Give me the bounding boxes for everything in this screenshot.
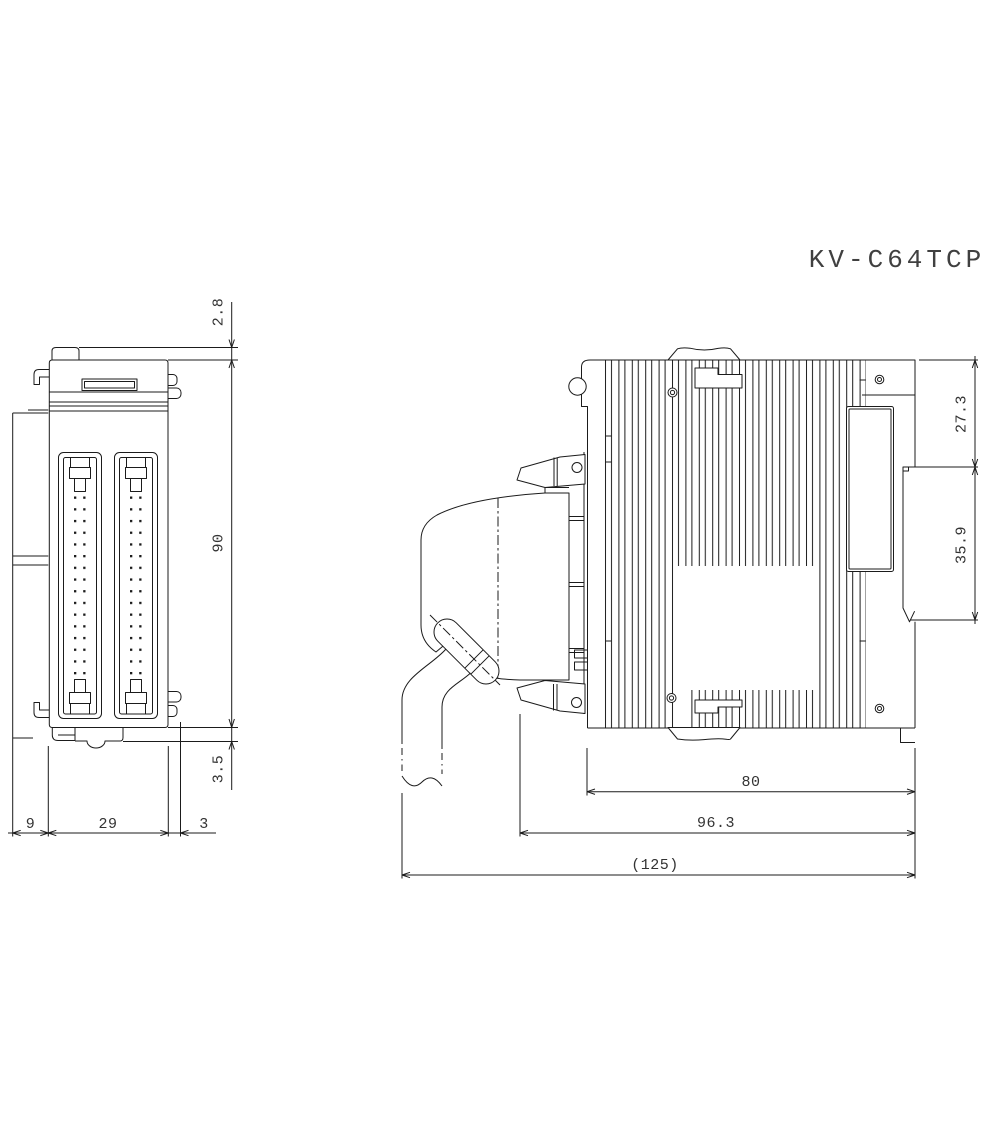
dim-side-depth-with-connector: 96.3 (697, 815, 735, 832)
adjacent-module-outline (13, 410, 49, 738)
side-view (402, 348, 915, 786)
dim-side-upper-section: 27.3 (954, 395, 971, 433)
pin-grid-a (74, 497, 87, 676)
cable-break-line (402, 776, 442, 786)
hood-bottom-bracket (517, 681, 585, 714)
dim-side-rail-section: 35.9 (954, 526, 971, 564)
front-bottom-tab (52, 728, 123, 749)
dim-front-body-width: 29 (98, 816, 117, 833)
heatsink-fins (603, 360, 866, 728)
front-view (13, 348, 181, 749)
front-top-clip (52, 348, 79, 361)
side-left-knob (569, 378, 586, 395)
ribbon-connector-a (59, 453, 102, 719)
dim-front-foot: 3.5 (211, 755, 228, 784)
dim-side-body-depth: 80 (741, 774, 760, 791)
ribbon-connector-b (115, 453, 158, 719)
side-bottom-foot (901, 728, 916, 743)
front-top-band (49, 379, 168, 411)
side-top-clip (668, 348, 740, 360)
dim-front-body-height: 90 (211, 533, 228, 552)
front-left-hooks (34, 370, 49, 718)
front-right-tabs (168, 375, 181, 717)
side-bottom-clip (668, 728, 740, 741)
pin-grid-b (130, 497, 143, 676)
dim-front-top-clip: 2.8 (211, 298, 228, 327)
label-window (82, 379, 137, 391)
cable (402, 649, 471, 786)
model-number-title: KV-C64TCP (809, 245, 985, 275)
technical-drawing: 2.8 90 3.5 9 29 3 27.3 35.9 80 96.3 (125… (0, 0, 1000, 1122)
dim-side-overall-depth: (125) (631, 857, 679, 874)
din-lock-slider (847, 407, 894, 572)
dim-front-left-protrusion: 9 (26, 816, 36, 833)
front-body-outline (49, 360, 168, 728)
dim-front-side-tab: 3 (199, 816, 209, 833)
drawing-canvas: 2.8 90 3.5 9 29 3 27.3 35.9 80 96.3 (125… (0, 0, 1000, 1122)
connector-hood (421, 455, 585, 714)
